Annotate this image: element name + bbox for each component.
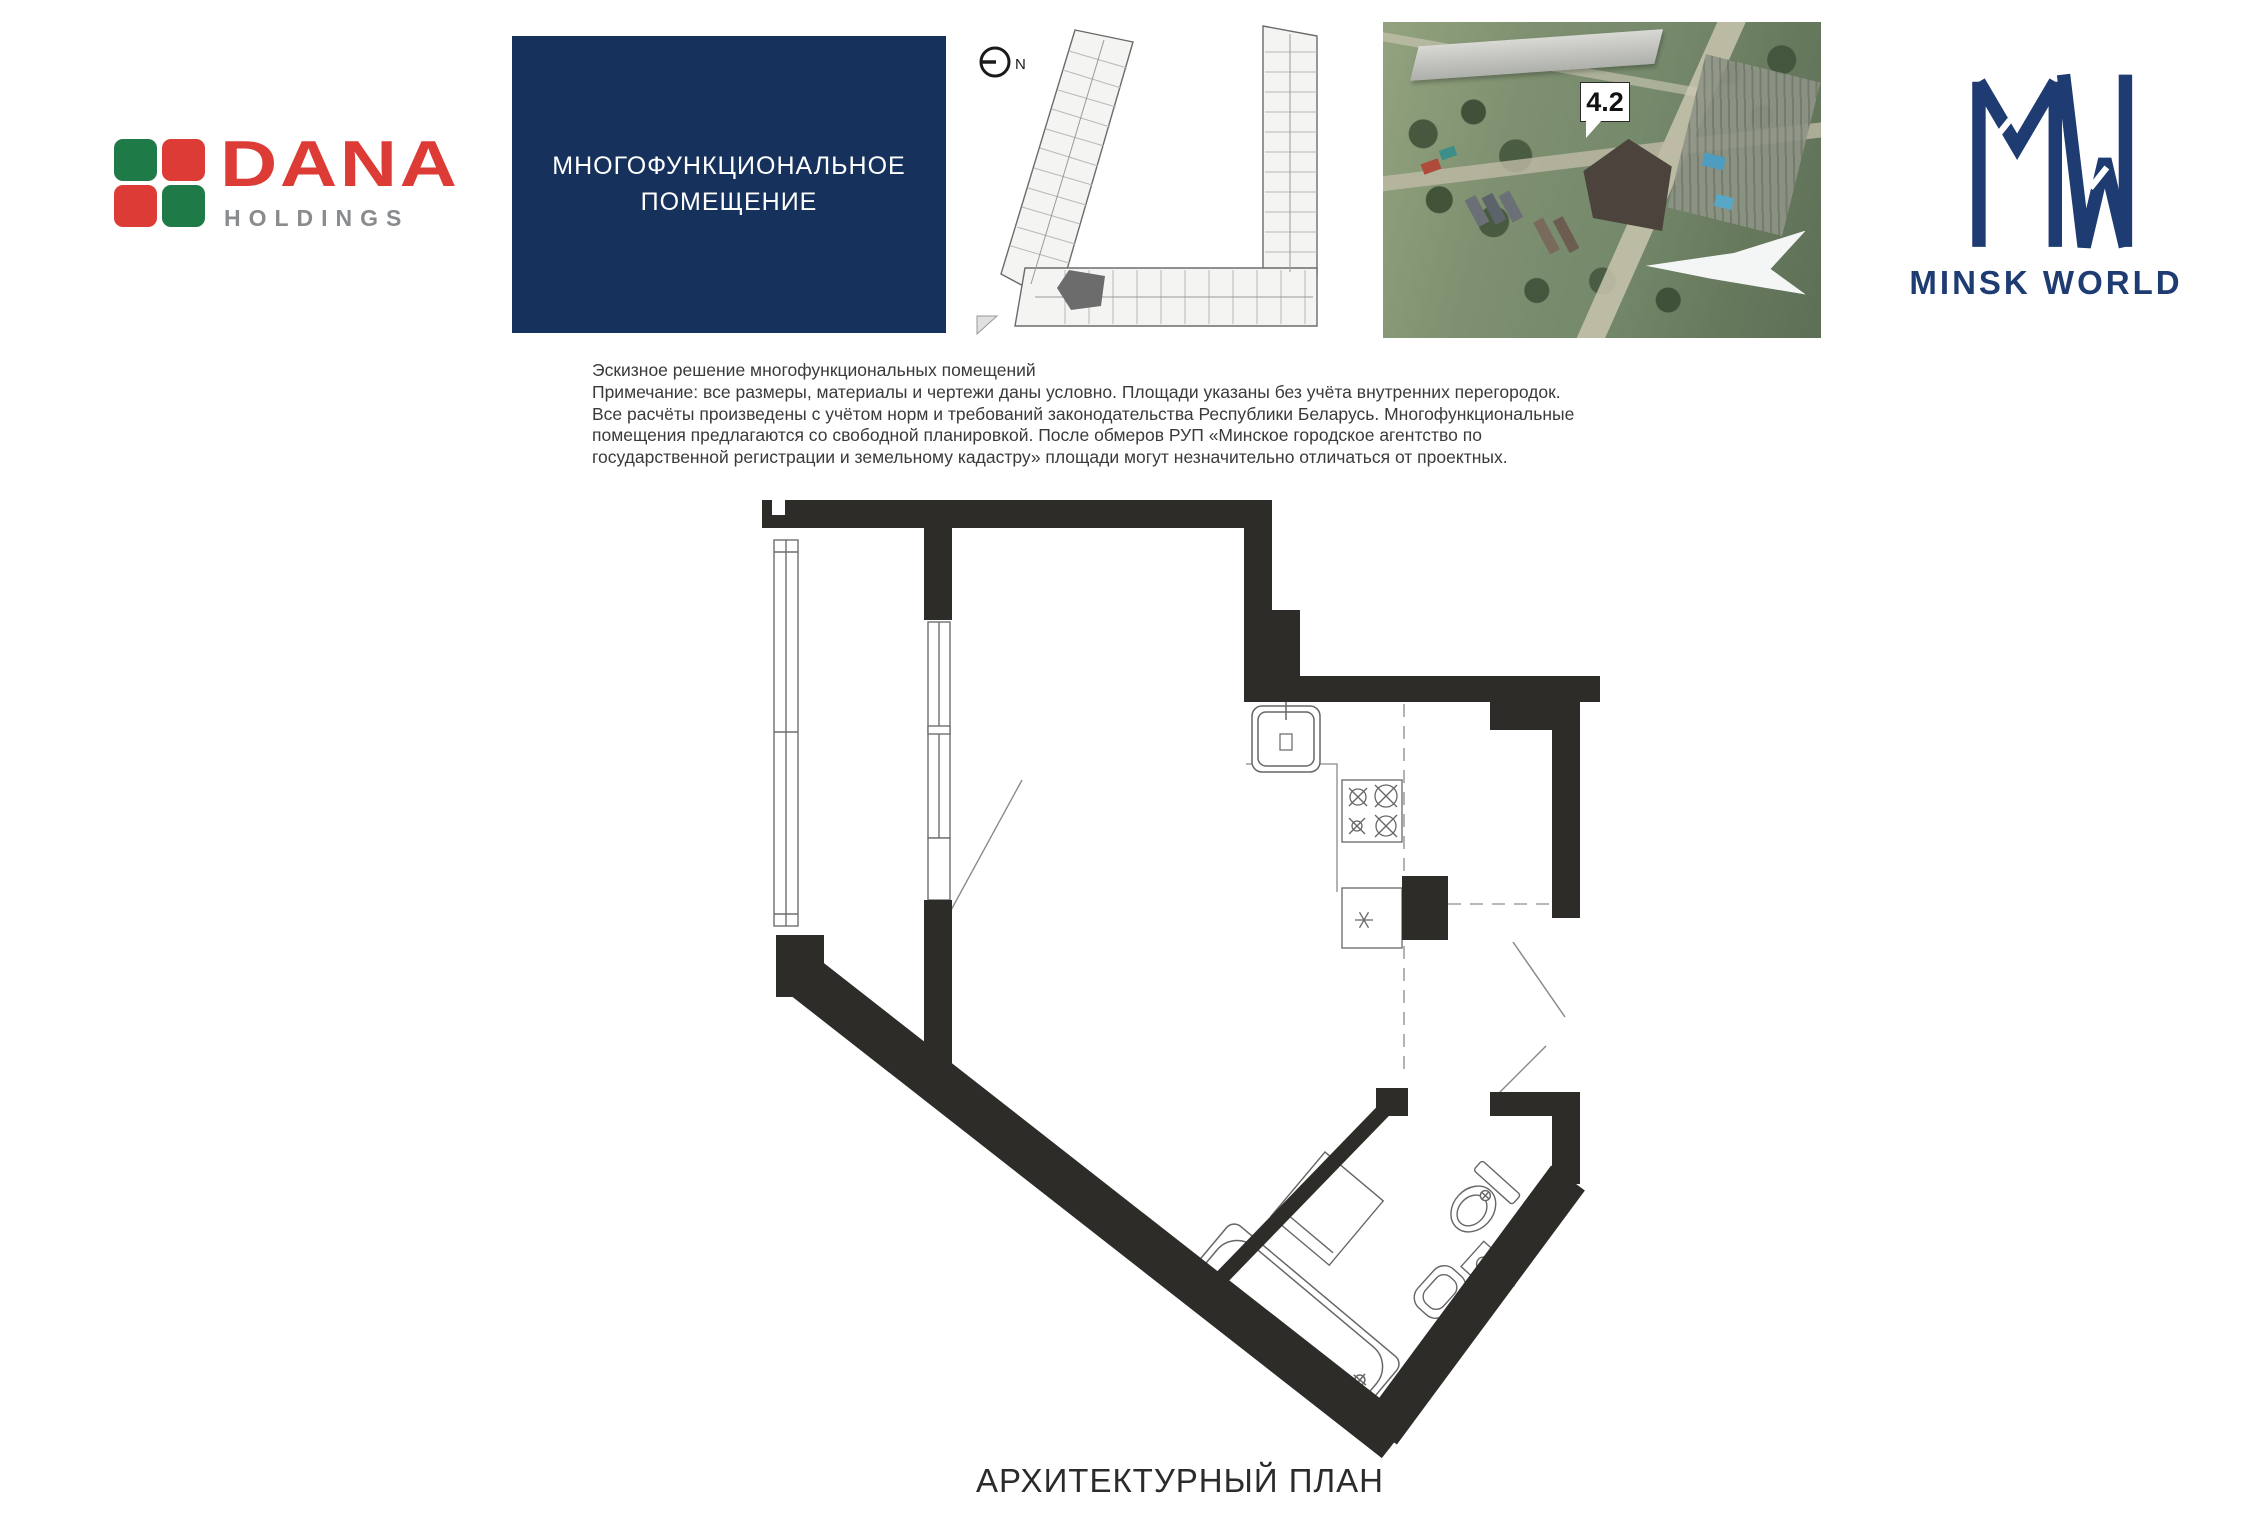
unit-type-title-box: МНОГОФУНКЦИОНАЛЬНОЕ ПОМЕЩЕНИЕ (512, 36, 946, 333)
dana-logo-subtitle: HOLDINGS (224, 205, 409, 232)
logo-square-red (114, 185, 157, 227)
dana-holdings-logo: DANA HOLDINGS (114, 139, 494, 243)
note-line-4: помещения предлагаются со свободной план… (592, 425, 1752, 447)
north-label: N (1015, 56, 1026, 73)
balcony-window (774, 540, 798, 926)
logo-square-green (114, 139, 157, 181)
aerial-site-photo: 4.2 (1383, 22, 1821, 338)
neighbor-building (1410, 29, 1663, 81)
callout-pointer-icon (1586, 120, 1602, 138)
corner-hatch (977, 316, 997, 334)
brochure-page: DANA HOLDINGS МНОГОФУНКЦИОНАЛЬНОЕ ПОМЕЩЕ… (0, 0, 2257, 1515)
wall-right-step-block (1490, 702, 1580, 730)
wall-top-notch (772, 500, 785, 515)
wall-right-step (1244, 528, 1300, 676)
note-line-5: государственной регистрации и земельному… (592, 447, 1752, 469)
building-number-badge: 4.2 (1580, 82, 1630, 122)
bathroom-door-swing (1494, 1046, 1546, 1098)
minsk-world-mw-monogram-icon (1956, 56, 2136, 252)
plan-caption: АРХИТЕКТУРНЫЙ ПЛАН (740, 1462, 1620, 1500)
wall-pillar (1402, 876, 1448, 940)
title-line-1: МНОГОФУНКЦИОНАЛЬНОЕ (512, 148, 946, 184)
dana-logo-title: DANA (220, 127, 460, 202)
compass-north-icon: N (980, 48, 1026, 76)
logo-square-red (162, 139, 205, 181)
note-line-3: Все расчёты произведены с учётом норм и … (592, 404, 1752, 426)
wall-kitchen-top (1244, 676, 1600, 702)
balcony-door (928, 838, 950, 900)
stove-cooktop (1342, 780, 1402, 842)
note-line-2: Примечание: все размеры, материалы и чер… (592, 382, 1752, 404)
disclaimer-note: Эскизное решение многофункциональных пом… (592, 360, 1752, 469)
note-line-1: Эскизное решение многофункциональных пом… (592, 360, 1752, 382)
dana-logo-squares-icon (114, 139, 206, 229)
entry-door-swing (1513, 942, 1565, 1017)
wall-balcony-partition-top (924, 528, 952, 620)
floor-plan-drawing (740, 480, 1620, 1470)
wall-top (762, 500, 1272, 528)
balcony-door-swing (950, 780, 1022, 912)
building-footprint (1001, 26, 1317, 326)
wall-entry-corner (1490, 1092, 1580, 1184)
kitchen-sink (1252, 694, 1320, 772)
fridge-appliance (1342, 888, 1402, 948)
minsk-world-wordmark: MINSK WORLD (1860, 264, 2232, 302)
title-line-2: ПОМЕЩЕНИЕ (512, 184, 946, 220)
unit-type-title: МНОГОФУНКЦИОНАЛЬНОЕ ПОМЕЩЕНИЕ (512, 36, 946, 220)
building-key-plan: N (965, 22, 1345, 338)
wall-right-upper (1552, 730, 1580, 918)
wall-partition-cap (1376, 1088, 1408, 1116)
minsk-world-logo: MINSK WORLD (1860, 56, 2232, 316)
kitchen-counter-line (1246, 764, 1337, 892)
logo-square-green (162, 185, 205, 227)
walls (762, 500, 1600, 1440)
balcony-partition-window (928, 622, 950, 900)
